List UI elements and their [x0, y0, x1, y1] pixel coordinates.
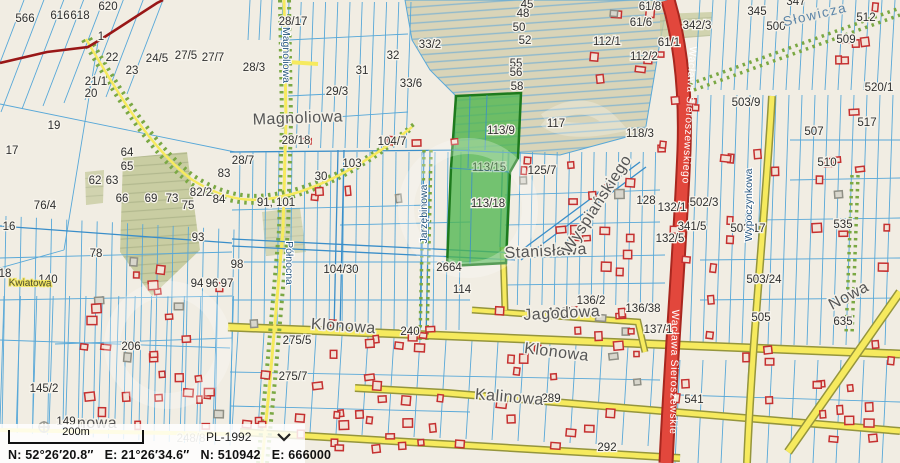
- map-viewport[interactable]: 5666166186201222324/527/527/721/12019171…: [0, 0, 900, 463]
- parcel-label: 98: [231, 259, 244, 271]
- parcel-label: 75: [182, 200, 195, 212]
- parcel-label: 58: [511, 81, 524, 93]
- parcel-label: 618: [70, 10, 89, 22]
- parcel-label: 61/6: [630, 17, 652, 29]
- parcel-label: 345: [747, 6, 766, 18]
- parcel-label: 566: [15, 13, 34, 25]
- parcel-label: 31: [356, 65, 369, 77]
- parcel-label: 240: [400, 326, 419, 338]
- parcel-label: 91, 101: [257, 197, 295, 209]
- parcel-label: 145/2: [30, 383, 59, 395]
- parcel-label: 63: [106, 175, 119, 187]
- parcel-label: 104/7: [378, 136, 407, 148]
- street-label: Wypoczynkowa: [743, 168, 755, 241]
- parcel-label: 66: [116, 193, 129, 205]
- parcel-label: 21/1: [85, 76, 107, 88]
- parcel-label: 275/5: [283, 335, 312, 347]
- parcel-label: 503/9: [732, 97, 761, 109]
- coord-geo-e: E: 21°26′34.6″: [105, 448, 190, 462]
- parcel-label: 28/7: [232, 155, 254, 167]
- parcel-label: 32: [387, 50, 400, 62]
- parcel-label: 620: [98, 1, 117, 13]
- parcel-label: 23: [126, 65, 139, 77]
- parcel-label: 206: [121, 341, 140, 353]
- parcel-label: 113/15: [472, 162, 506, 174]
- parcel-label: 33/6: [400, 78, 422, 90]
- crs-selector[interactable]: PL-1992: [206, 430, 291, 444]
- parcel-label: 503/24: [746, 274, 782, 286]
- parcel-label: 289: [541, 393, 560, 405]
- parcel-label: 62: [89, 175, 102, 187]
- parcel-label: 28/3: [243, 62, 265, 74]
- parcel-label: 132/5: [656, 233, 685, 245]
- parcel-label: 1: [98, 31, 104, 43]
- street-label: Magnoliowa: [252, 108, 343, 128]
- parcel-label: 93: [192, 232, 205, 244]
- crs-label: PL-1992: [206, 430, 251, 444]
- street-label: Kwiatowa: [9, 278, 52, 290]
- parcel-label: 48: [517, 8, 530, 20]
- parcel-label: 113/9: [487, 125, 515, 137]
- parcel-label: 510: [817, 157, 836, 169]
- parcel-label: 82/2: [190, 187, 212, 199]
- parcel-label: 61/8: [639, 1, 661, 13]
- parcel-label: 84: [213, 194, 226, 206]
- parcel-label: 118/3: [626, 128, 654, 140]
- parcel-label: 56: [510, 67, 523, 79]
- parcel-label: 103: [342, 158, 361, 170]
- parcel-label: 505: [751, 312, 770, 324]
- parcel-label: 104/30: [323, 264, 358, 276]
- parcel-label: 65: [121, 161, 134, 173]
- parcel-label: 52: [519, 35, 532, 47]
- parcel-label: 97: [221, 278, 234, 290]
- parcel-label: 512: [856, 12, 875, 24]
- parcel-label: 50: [513, 22, 526, 34]
- coord-geo-n: N: 52°26′20.8″: [8, 448, 94, 462]
- street-label: Wacława Sieroszewskie: [667, 310, 681, 435]
- parcel-label: 22: [106, 52, 119, 64]
- parcel-label: 128: [636, 195, 655, 207]
- parcel-label: 517: [857, 117, 876, 129]
- street-label: Magnoliowa: [280, 27, 292, 83]
- parcel-label: 96: [206, 278, 219, 290]
- chevron-down-icon[interactable]: [277, 433, 291, 442]
- parcel-label: 61/1: [658, 37, 680, 49]
- parcel-label: 2664: [436, 262, 462, 274]
- scale-bar-label: 200m: [10, 426, 142, 438]
- coord-grid-e: E: 666000: [272, 448, 331, 462]
- parcel-label: 541: [684, 394, 703, 406]
- parcel-label: 114: [453, 284, 472, 296]
- scale-bar: 200m: [8, 430, 144, 444]
- parcel-label: 19: [48, 120, 61, 132]
- parcel-label: 78: [90, 248, 103, 260]
- parcel-label: 29/3: [326, 86, 348, 98]
- parcel-label: 112/1: [593, 36, 621, 48]
- parcel-label: 132/1: [658, 202, 687, 214]
- parcel-label: 502/3: [690, 197, 719, 209]
- parcel-label: 16: [3, 221, 16, 233]
- parcel-label: 30: [315, 171, 328, 183]
- parcel-label: 27/5: [175, 50, 197, 62]
- parcel-label: 76/4: [34, 200, 57, 212]
- parcel-label: 125/7: [528, 165, 557, 177]
- parcel-label: 137/1: [644, 324, 673, 336]
- parcel-label: 64: [121, 147, 134, 159]
- parcel-label: 616: [50, 10, 69, 22]
- cadastral-map-canvas[interactable]: 5666166186201222324/527/527/721/12019171…: [0, 0, 900, 463]
- parcel-label: 27/7: [202, 52, 224, 64]
- coord-grid-n: N: 510942: [201, 448, 261, 462]
- street-label: Północna: [283, 241, 295, 285]
- parcel-label: 520/1: [865, 82, 894, 94]
- parcel-label: 136/38: [625, 303, 660, 315]
- parcel-label: 24/5: [146, 53, 168, 65]
- parcel-label: 69: [145, 193, 158, 205]
- street-label: Jarzębinowa: [418, 184, 430, 243]
- parcel-label: 113/18: [471, 198, 505, 210]
- parcel-label: 28/18: [282, 135, 311, 147]
- parcel-label: 635: [833, 316, 852, 328]
- status-bar: 200m PL-1992 N: 52°26′20.8″E: 21°26′34.6…: [0, 424, 305, 463]
- parcel-label: 509: [836, 34, 855, 46]
- parcel-label: 83: [218, 168, 231, 180]
- parcel-label: 20: [85, 88, 98, 100]
- parcel-label: 117: [547, 118, 565, 130]
- parcel-label: 112/2: [630, 51, 658, 63]
- parcel-label: 275/7: [279, 371, 308, 383]
- parcel-label: 94: [191, 278, 204, 290]
- parcel-label: 73: [166, 193, 179, 205]
- parcel-label: 507: [804, 126, 823, 138]
- coordinates-readout: N: 52°26′20.8″E: 21°26′34.6″N: 510942E: …: [8, 448, 305, 462]
- parcel-label: 342/3: [683, 20, 712, 32]
- parcel-label: 292: [597, 442, 616, 454]
- parcel-label: 33/2: [419, 39, 441, 51]
- parcel-label: 535: [833, 219, 852, 231]
- parcel-label: 17: [6, 145, 19, 157]
- parcel-label: 341/5: [678, 221, 707, 233]
- parcel-label: 347: [786, 0, 805, 8]
